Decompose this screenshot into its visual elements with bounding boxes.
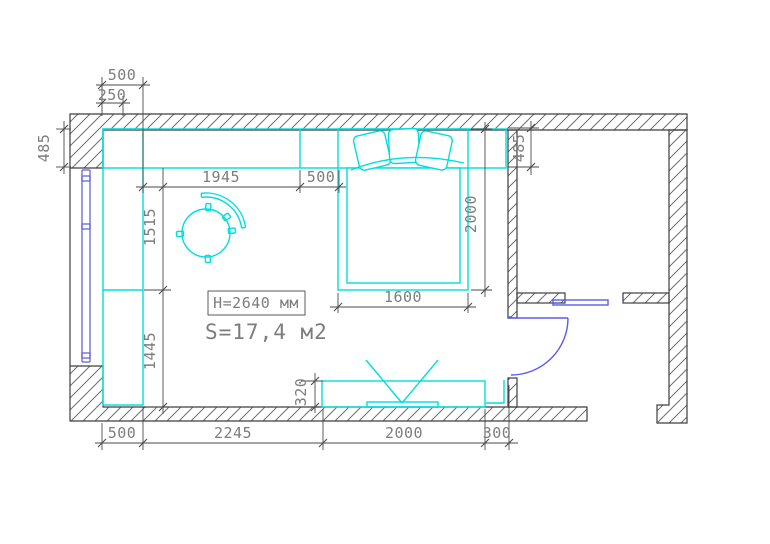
room-outline-door-corner bbox=[486, 380, 504, 403]
dim-label-bottom-2000: 2000 bbox=[385, 424, 423, 442]
dim-label-width-1945: 1945 bbox=[202, 168, 240, 186]
dim-label-height-1445: 1445 bbox=[141, 332, 159, 370]
corridor-wall-right-segment bbox=[623, 293, 669, 303]
chair-back-cap bbox=[242, 227, 246, 228]
wardrobe bbox=[103, 129, 143, 405]
dim-label-left-485: 485 bbox=[35, 134, 53, 163]
floor-plan-drawing: 500 250 485 1945 500 1515 1445 2000 bbox=[0, 0, 770, 544]
door-swing-arc bbox=[511, 318, 568, 375]
dim-label-bed-1600: 1600 bbox=[384, 288, 422, 306]
round-chair bbox=[176, 193, 245, 263]
doors bbox=[508, 300, 608, 375]
dim-label-top-500: 500 bbox=[108, 66, 137, 84]
dim-label-bottom-2245: 2245 bbox=[214, 424, 252, 442]
pillow bbox=[415, 130, 454, 171]
right-outer-wall bbox=[657, 130, 687, 423]
mattress bbox=[347, 168, 460, 283]
dim-label-top-250: 250 bbox=[98, 86, 127, 104]
window-mullion bbox=[82, 224, 90, 229]
floor-plan-canvas: 500 250 485 1945 500 1515 1445 2000 bbox=[0, 0, 770, 544]
dim-label-tv-320: 320 bbox=[292, 378, 310, 407]
dim-label-width-500: 500 bbox=[307, 168, 336, 186]
corridor-wall-left-segment bbox=[517, 293, 565, 303]
window-mullion bbox=[82, 353, 90, 358]
window bbox=[70, 168, 90, 366]
dim-label-bottom-500: 500 bbox=[108, 424, 137, 442]
dim-label-right-485: 485 bbox=[510, 134, 528, 163]
chair-tab bbox=[222, 213, 231, 221]
annotations: H=2640 мм S=17,4 м2 bbox=[205, 291, 328, 344]
chair-back-arc bbox=[202, 197, 242, 228]
dim-label-bottom-300: 300 bbox=[483, 424, 512, 442]
ceiling-height-label: H=2640 мм bbox=[213, 294, 299, 312]
chair-back-cap bbox=[201, 193, 202, 197]
dim-label-height-1515: 1515 bbox=[141, 208, 159, 246]
dim-label-bed-2000: 2000 bbox=[462, 195, 480, 233]
pillow bbox=[353, 130, 392, 171]
area-label: S=17,4 м2 bbox=[205, 320, 328, 344]
tv-cabinet bbox=[322, 381, 485, 407]
window-mullion bbox=[82, 176, 90, 181]
